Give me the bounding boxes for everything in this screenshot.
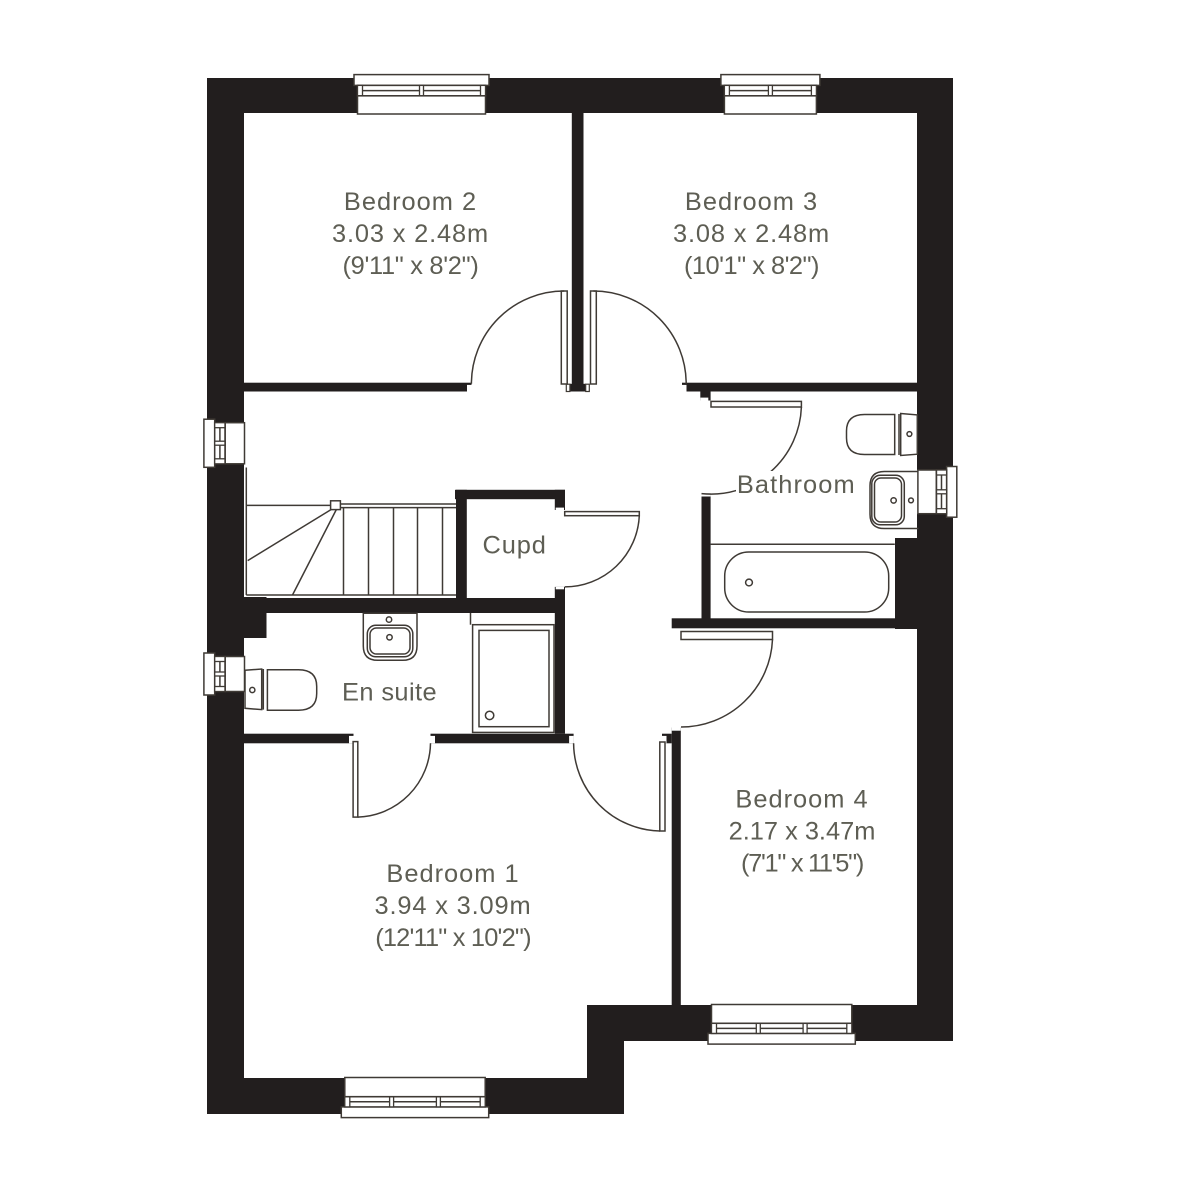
svg-text:Cupd: Cupd [483, 532, 547, 560]
svg-text:2.17 x 3.47m: 2.17 x 3.47m [729, 818, 876, 846]
svg-text:En suite: En suite [342, 679, 437, 707]
svg-text:Bedroom 4: Bedroom 4 [735, 786, 868, 814]
svg-text:3.94 x 3.09m: 3.94 x 3.09m [375, 892, 532, 920]
svg-text:Bedroom 1: Bedroom 1 [386, 860, 519, 888]
svg-text:Bedroom 2: Bedroom 2 [344, 188, 477, 216]
svg-text:(12'11" x 10'2"): (12'11" x 10'2") [375, 924, 531, 952]
svg-text:3.08 x 2.48m: 3.08 x 2.48m [673, 220, 830, 248]
svg-text:Bathroom: Bathroom [737, 471, 856, 499]
svg-text:(9'11" x 8'2"): (9'11" x 8'2") [343, 252, 479, 280]
svg-text:3.03 x 2.48m: 3.03 x 2.48m [332, 220, 489, 248]
svg-text:Bedroom 3: Bedroom 3 [685, 188, 818, 216]
svg-text:(10'1" x 8'2"): (10'1" x 8'2") [684, 252, 819, 280]
svg-text:(7'1" x 11'5"): (7'1" x 11'5") [741, 850, 863, 878]
